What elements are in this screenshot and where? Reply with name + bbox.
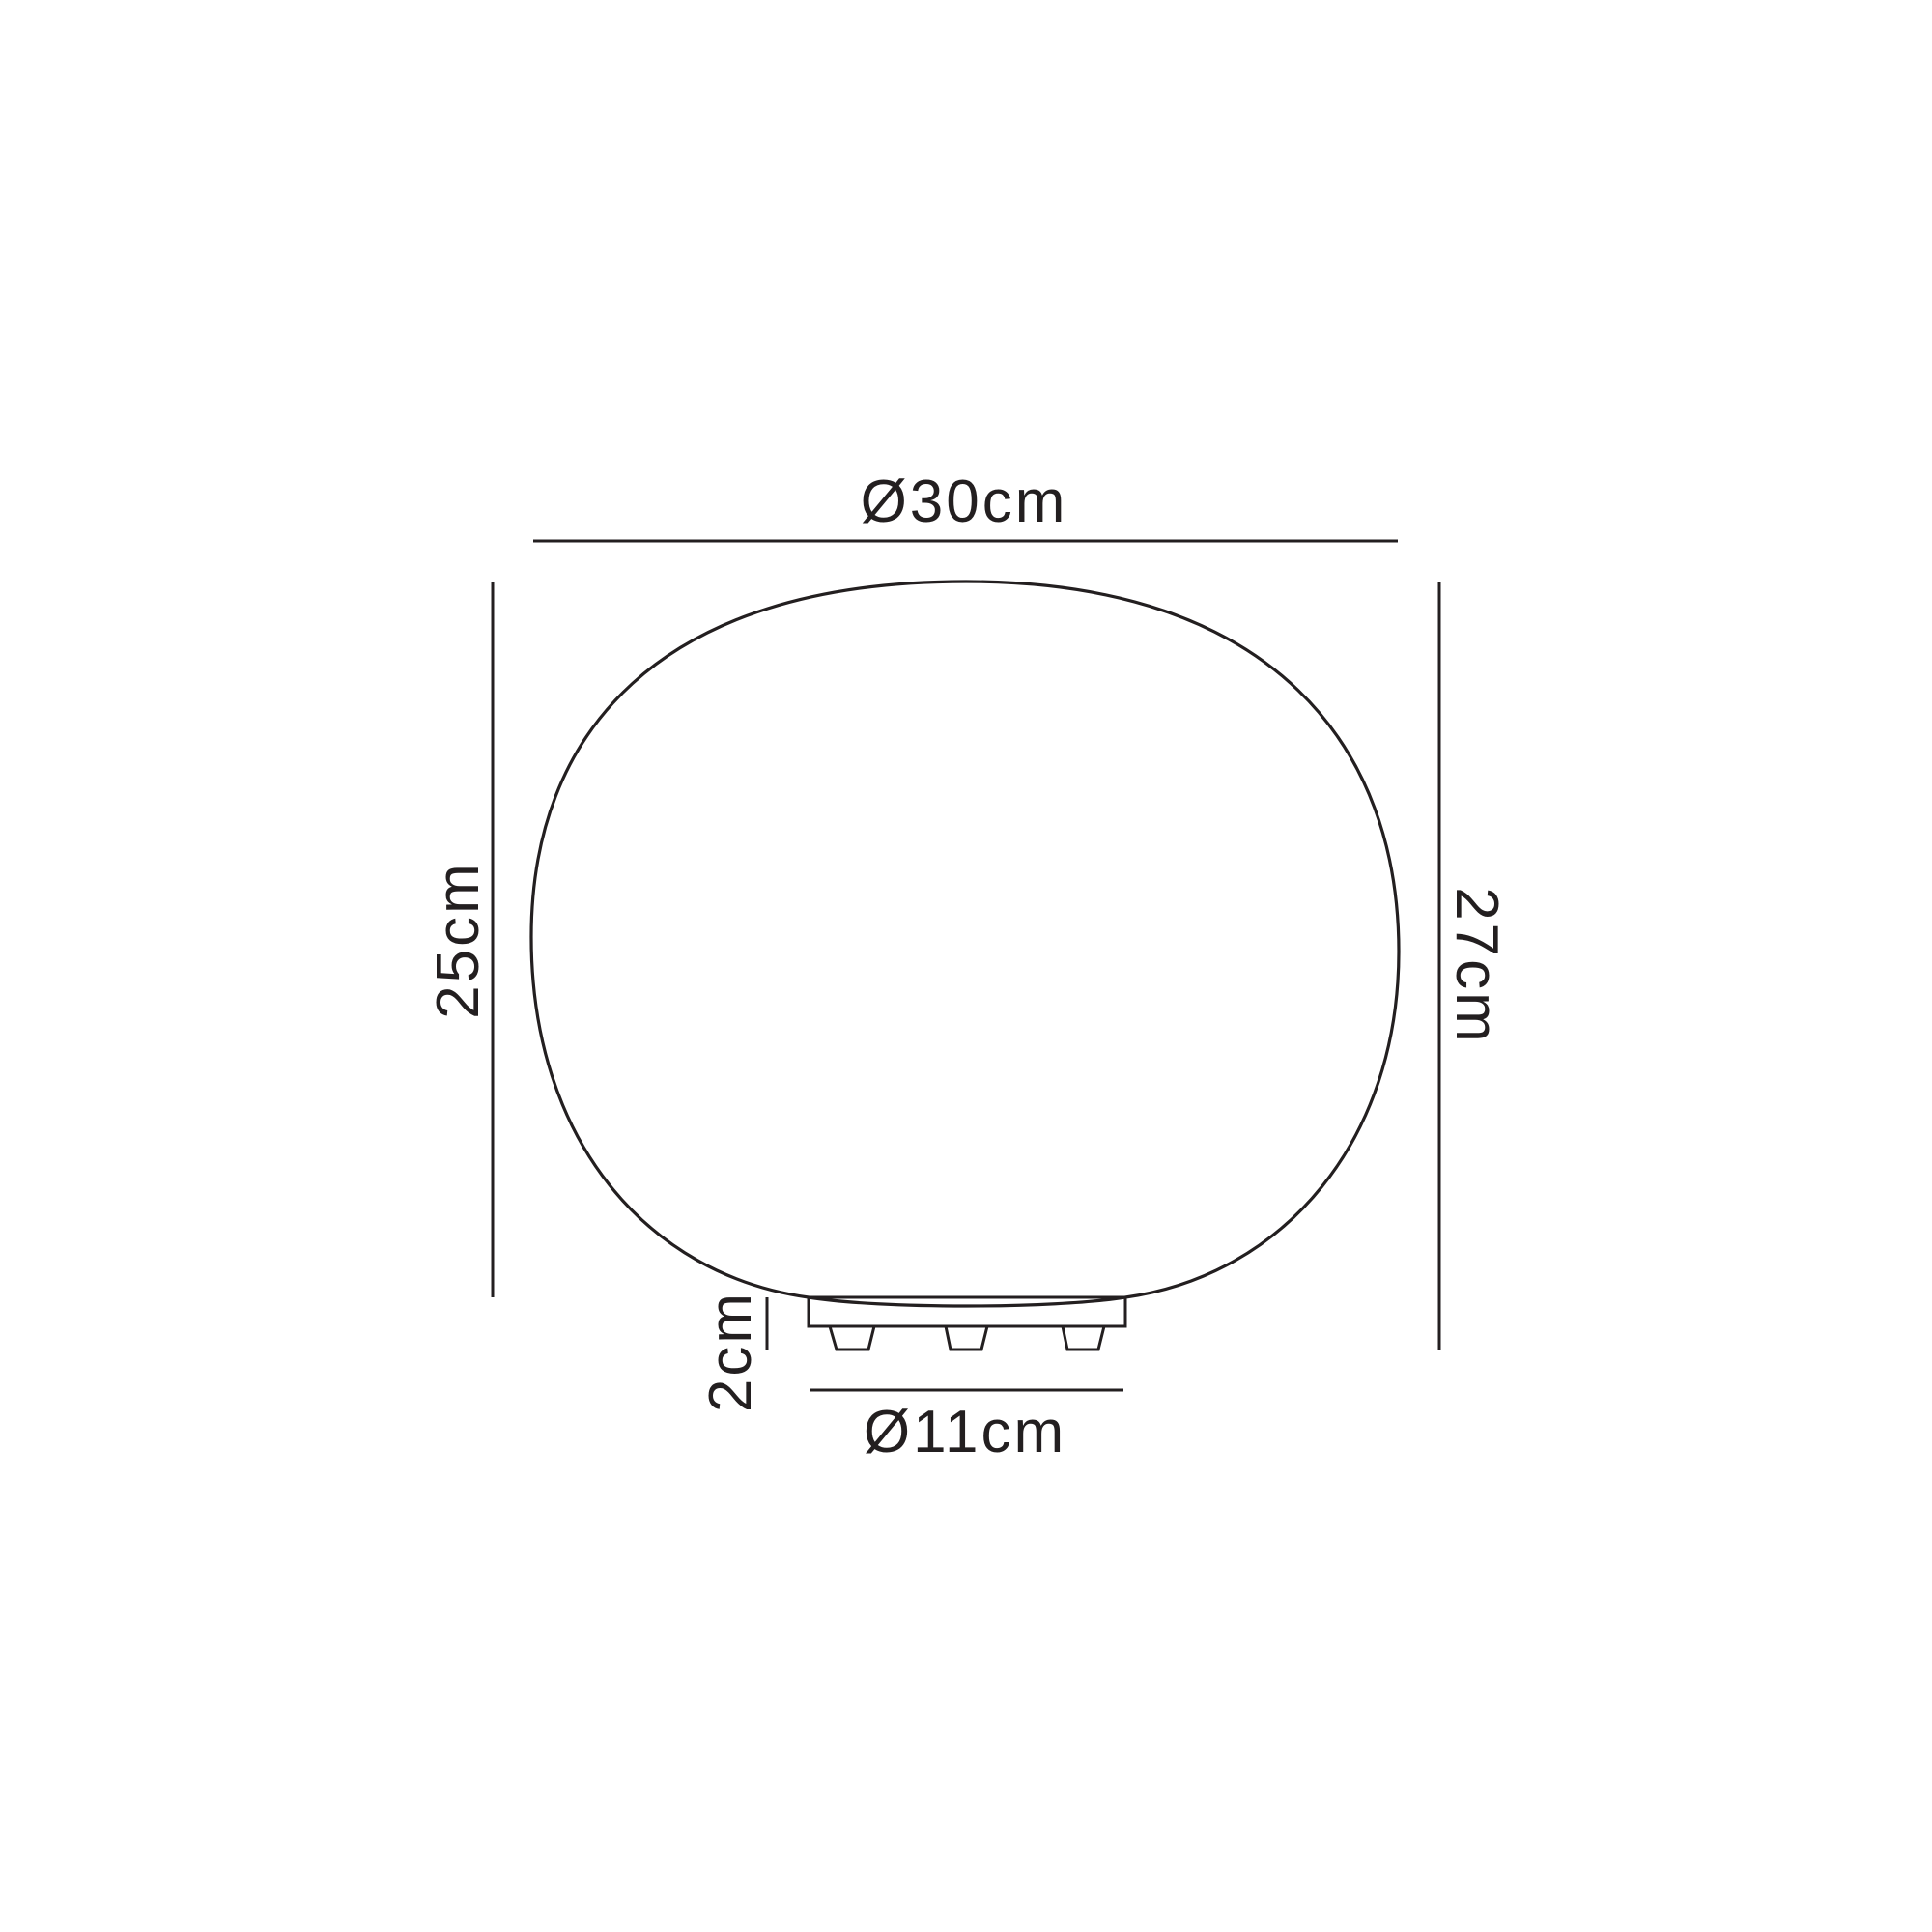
shade-outline (531, 582, 1399, 1306)
base-foot-left (830, 1326, 874, 1350)
label-overall-height: 27cm (1443, 887, 1510, 1045)
label-shade-height: 25cm (425, 861, 492, 1019)
lamp-dimension-drawing: Ø30cm 25cm 27cm 2cm Ø11cm (0, 0, 1932, 1932)
label-base-diameter: Ø11cm (864, 1399, 1066, 1465)
base-foot-right (1063, 1326, 1104, 1350)
base-foot-center (946, 1326, 987, 1350)
labels-group: Ø30cm 25cm 27cm 2cm Ø11cm (425, 469, 1510, 1465)
label-base-height: 2cm (697, 1291, 764, 1412)
diagram-canvas: Ø30cm 25cm 27cm 2cm Ø11cm (0, 0, 1932, 1932)
geometry-group (493, 541, 1439, 1390)
label-shade-diameter: Ø30cm (861, 469, 1068, 535)
